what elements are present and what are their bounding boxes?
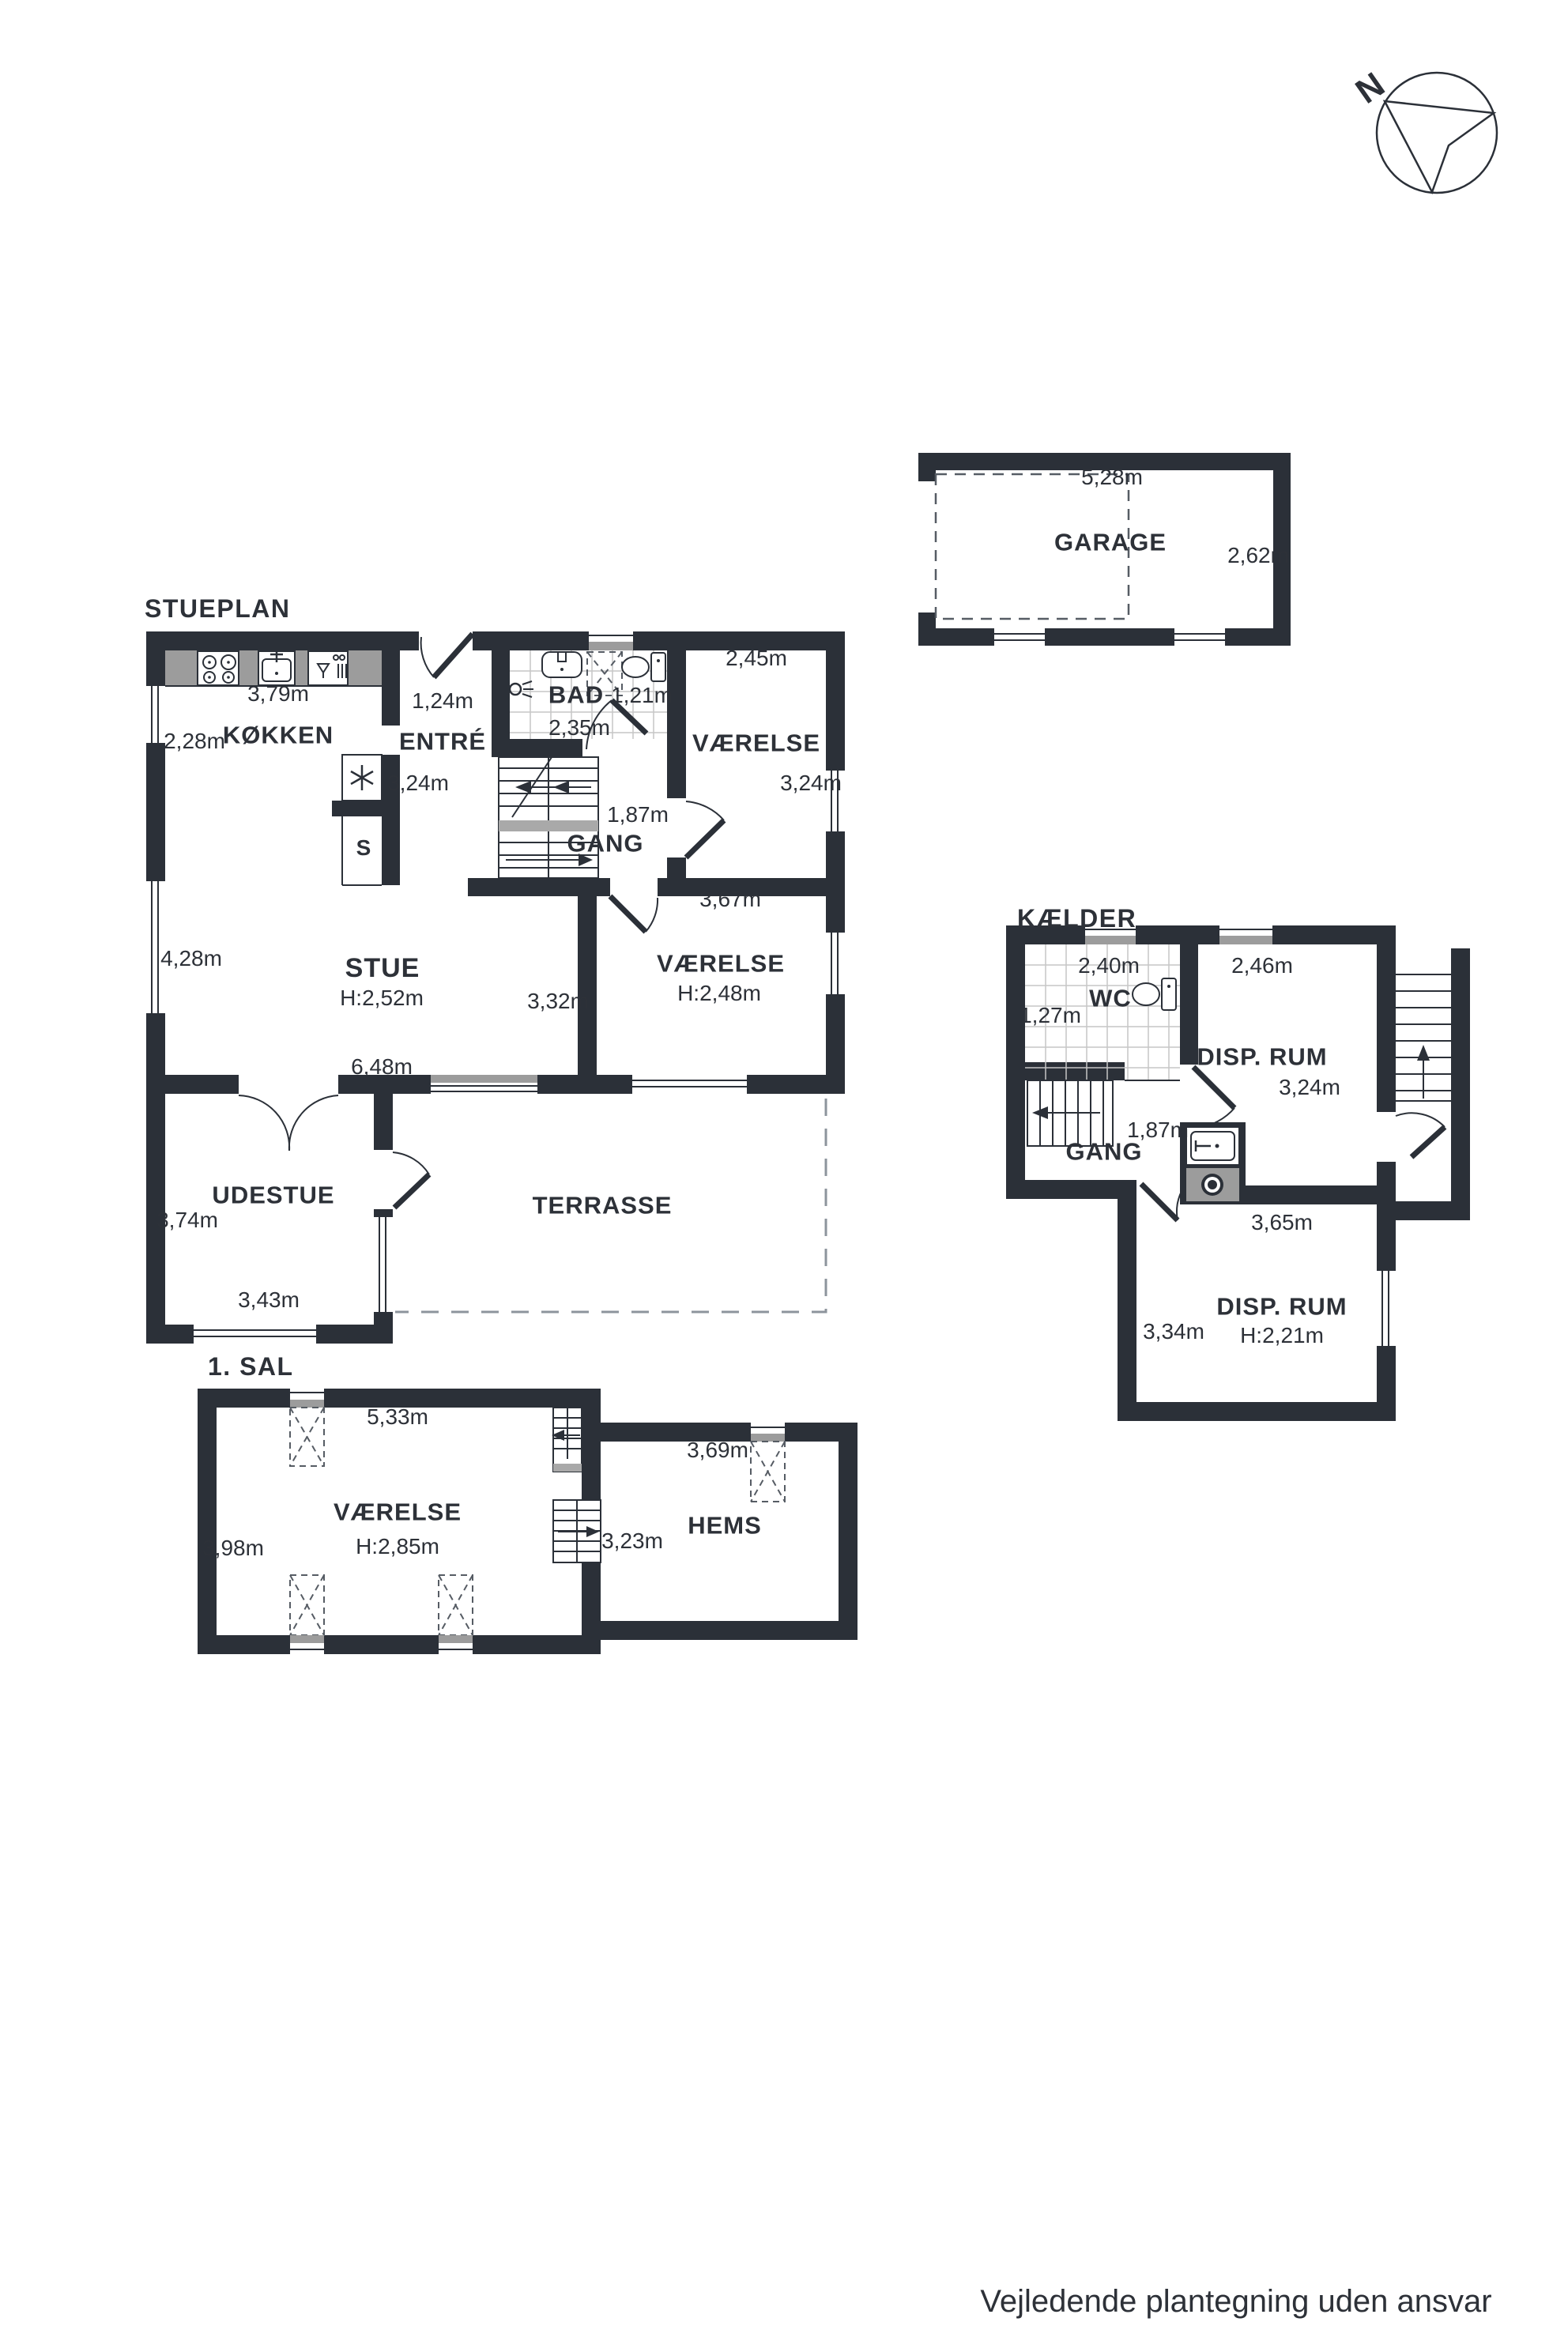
room-gang: GANG — [567, 831, 644, 856]
dim-vaerelse2-width: 3,67m — [699, 888, 761, 910]
garage-window — [994, 628, 1045, 646]
dim-disp2-width: 3,65m — [1251, 1212, 1313, 1234]
room-hems: HEMS — [688, 1513, 762, 1538]
room-kaelder-gang: GANG — [1066, 1140, 1143, 1164]
dim-sal-vaerelse-width: 5,33m — [367, 1406, 428, 1428]
room-kokken: KØKKEN — [223, 723, 334, 748]
floorplan-drawing — [0, 0, 1568, 2352]
dishwasher-icon — [308, 651, 348, 685]
door-kgang-disp1 — [1193, 1067, 1234, 1128]
dim-sal-vaerelse-height: H:2,85m — [356, 1536, 439, 1558]
dim-garage-width: 5,28m — [1081, 466, 1143, 488]
room-entre: ENTRÉ — [399, 729, 486, 754]
room-disp2: DISP. RUM — [1216, 1295, 1347, 1319]
wc-toilet-icon — [1133, 978, 1176, 1010]
skylight — [290, 1389, 324, 1466]
dim-stue-width: 6,48m — [351, 1056, 413, 1078]
label-closet-s: S — [356, 837, 371, 859]
washing-machine-icon — [1186, 1168, 1239, 1201]
utility-sink-icon — [1186, 1127, 1239, 1165]
stove-icon — [198, 651, 239, 685]
north-arrow-icon — [1377, 73, 1497, 193]
garage-window — [1174, 628, 1225, 646]
skylight — [290, 1575, 324, 1654]
dim-vaerelse2-height: H:2,48m — [677, 982, 761, 1004]
room-terrasse: TERRASSE — [533, 1193, 673, 1218]
stueplan-stairs — [499, 748, 598, 878]
dim-disp1-width: 2,46m — [1231, 955, 1293, 977]
dim-bad-width: 2,35m — [548, 717, 610, 739]
room-wc: WC — [1089, 986, 1132, 1011]
bad-sink-icon — [542, 652, 582, 677]
dim-udestue-width: 3,43m — [238, 1289, 300, 1311]
door-gang-vaerelse2 — [610, 896, 658, 932]
room-vaerelse1: VÆRELSE — [692, 731, 820, 756]
dim-disp2-left: 3,34m — [1143, 1321, 1204, 1343]
kaelder-stairs — [1027, 1080, 1113, 1146]
dim-vaerelse1-depth: 3,24m — [780, 772, 842, 794]
kaelder-floorplan — [1006, 925, 1470, 1421]
room-garage: GARAGE — [1054, 530, 1167, 555]
fridge-icon — [342, 755, 382, 801]
utility-column — [1180, 1122, 1246, 1204]
dim-wc-width: 2,40m — [1078, 955, 1140, 977]
room-bad: BAD — [548, 683, 604, 707]
dim-gang: 1,87m — [607, 804, 669, 826]
french-doors — [231, 1075, 346, 1151]
door-udestue-terrasse — [393, 1152, 429, 1208]
entry-door — [421, 634, 473, 677]
toilet-icon — [622, 653, 665, 681]
floor-title-kaelder: KÆLDER — [1017, 906, 1136, 931]
dim-stue-height: H:2,52m — [340, 987, 424, 1009]
dim-bad-depth: 1,21m — [611, 684, 673, 707]
dim-udestue-left: 3,74m — [156, 1209, 218, 1231]
floor-title-stueplan: STUEPLAN — [145, 596, 290, 621]
floorplan-page: STUEPLAN3,79mKØKKEN2,28m1,24mENTRÉBAD2,3… — [0, 0, 1568, 2352]
kitchen-sink-icon — [258, 651, 295, 685]
dim-wc-depth: 1,27m — [1020, 1004, 1081, 1027]
floor-title-1sal: 1. SAL — [208, 1354, 294, 1379]
dim-fridge-wall: 3,24m — [387, 772, 449, 794]
dim-disp2-height: H:2,21m — [1240, 1325, 1324, 1347]
skylight — [751, 1423, 785, 1502]
dim-entre-door: 1,24m — [412, 690, 473, 712]
dim-kokken-counter: 3,79m — [247, 683, 309, 705]
door-gang-vaerelse1 — [686, 801, 724, 857]
dim-sal-vaerelse-left: 3,98m — [202, 1537, 264, 1559]
dim-disp1-depth: 3,24m — [1279, 1076, 1340, 1099]
skylight — [439, 1575, 473, 1654]
room-disp1: DISP. RUM — [1197, 1045, 1327, 1069]
room-sal-vaerelse: VÆRELSE — [334, 1500, 462, 1525]
door-kgang-disp2 — [1141, 1184, 1184, 1220]
dim-kokken-width: 2,28m — [164, 730, 225, 752]
dim-stue-left: 4,28m — [160, 948, 222, 970]
dim-vaerelse1-width: 2,45m — [726, 647, 787, 669]
dim-sal-stairs: 3,23m — [601, 1530, 663, 1552]
dim-stue-right: 3,32m — [527, 990, 589, 1012]
dim-garage-depth: 2,62m — [1227, 545, 1289, 567]
room-stue: STUE — [345, 955, 420, 982]
dim-hems-width: 3,69m — [687, 1439, 748, 1461]
room-udestue: UDESTUE — [212, 1183, 334, 1208]
kaelder-external-stairs — [1396, 974, 1451, 1157]
room-vaerelse2: VÆRELSE — [657, 952, 785, 976]
plan-disclaimer: Vejledende plantegning uden ansvar — [980, 2286, 1491, 2317]
